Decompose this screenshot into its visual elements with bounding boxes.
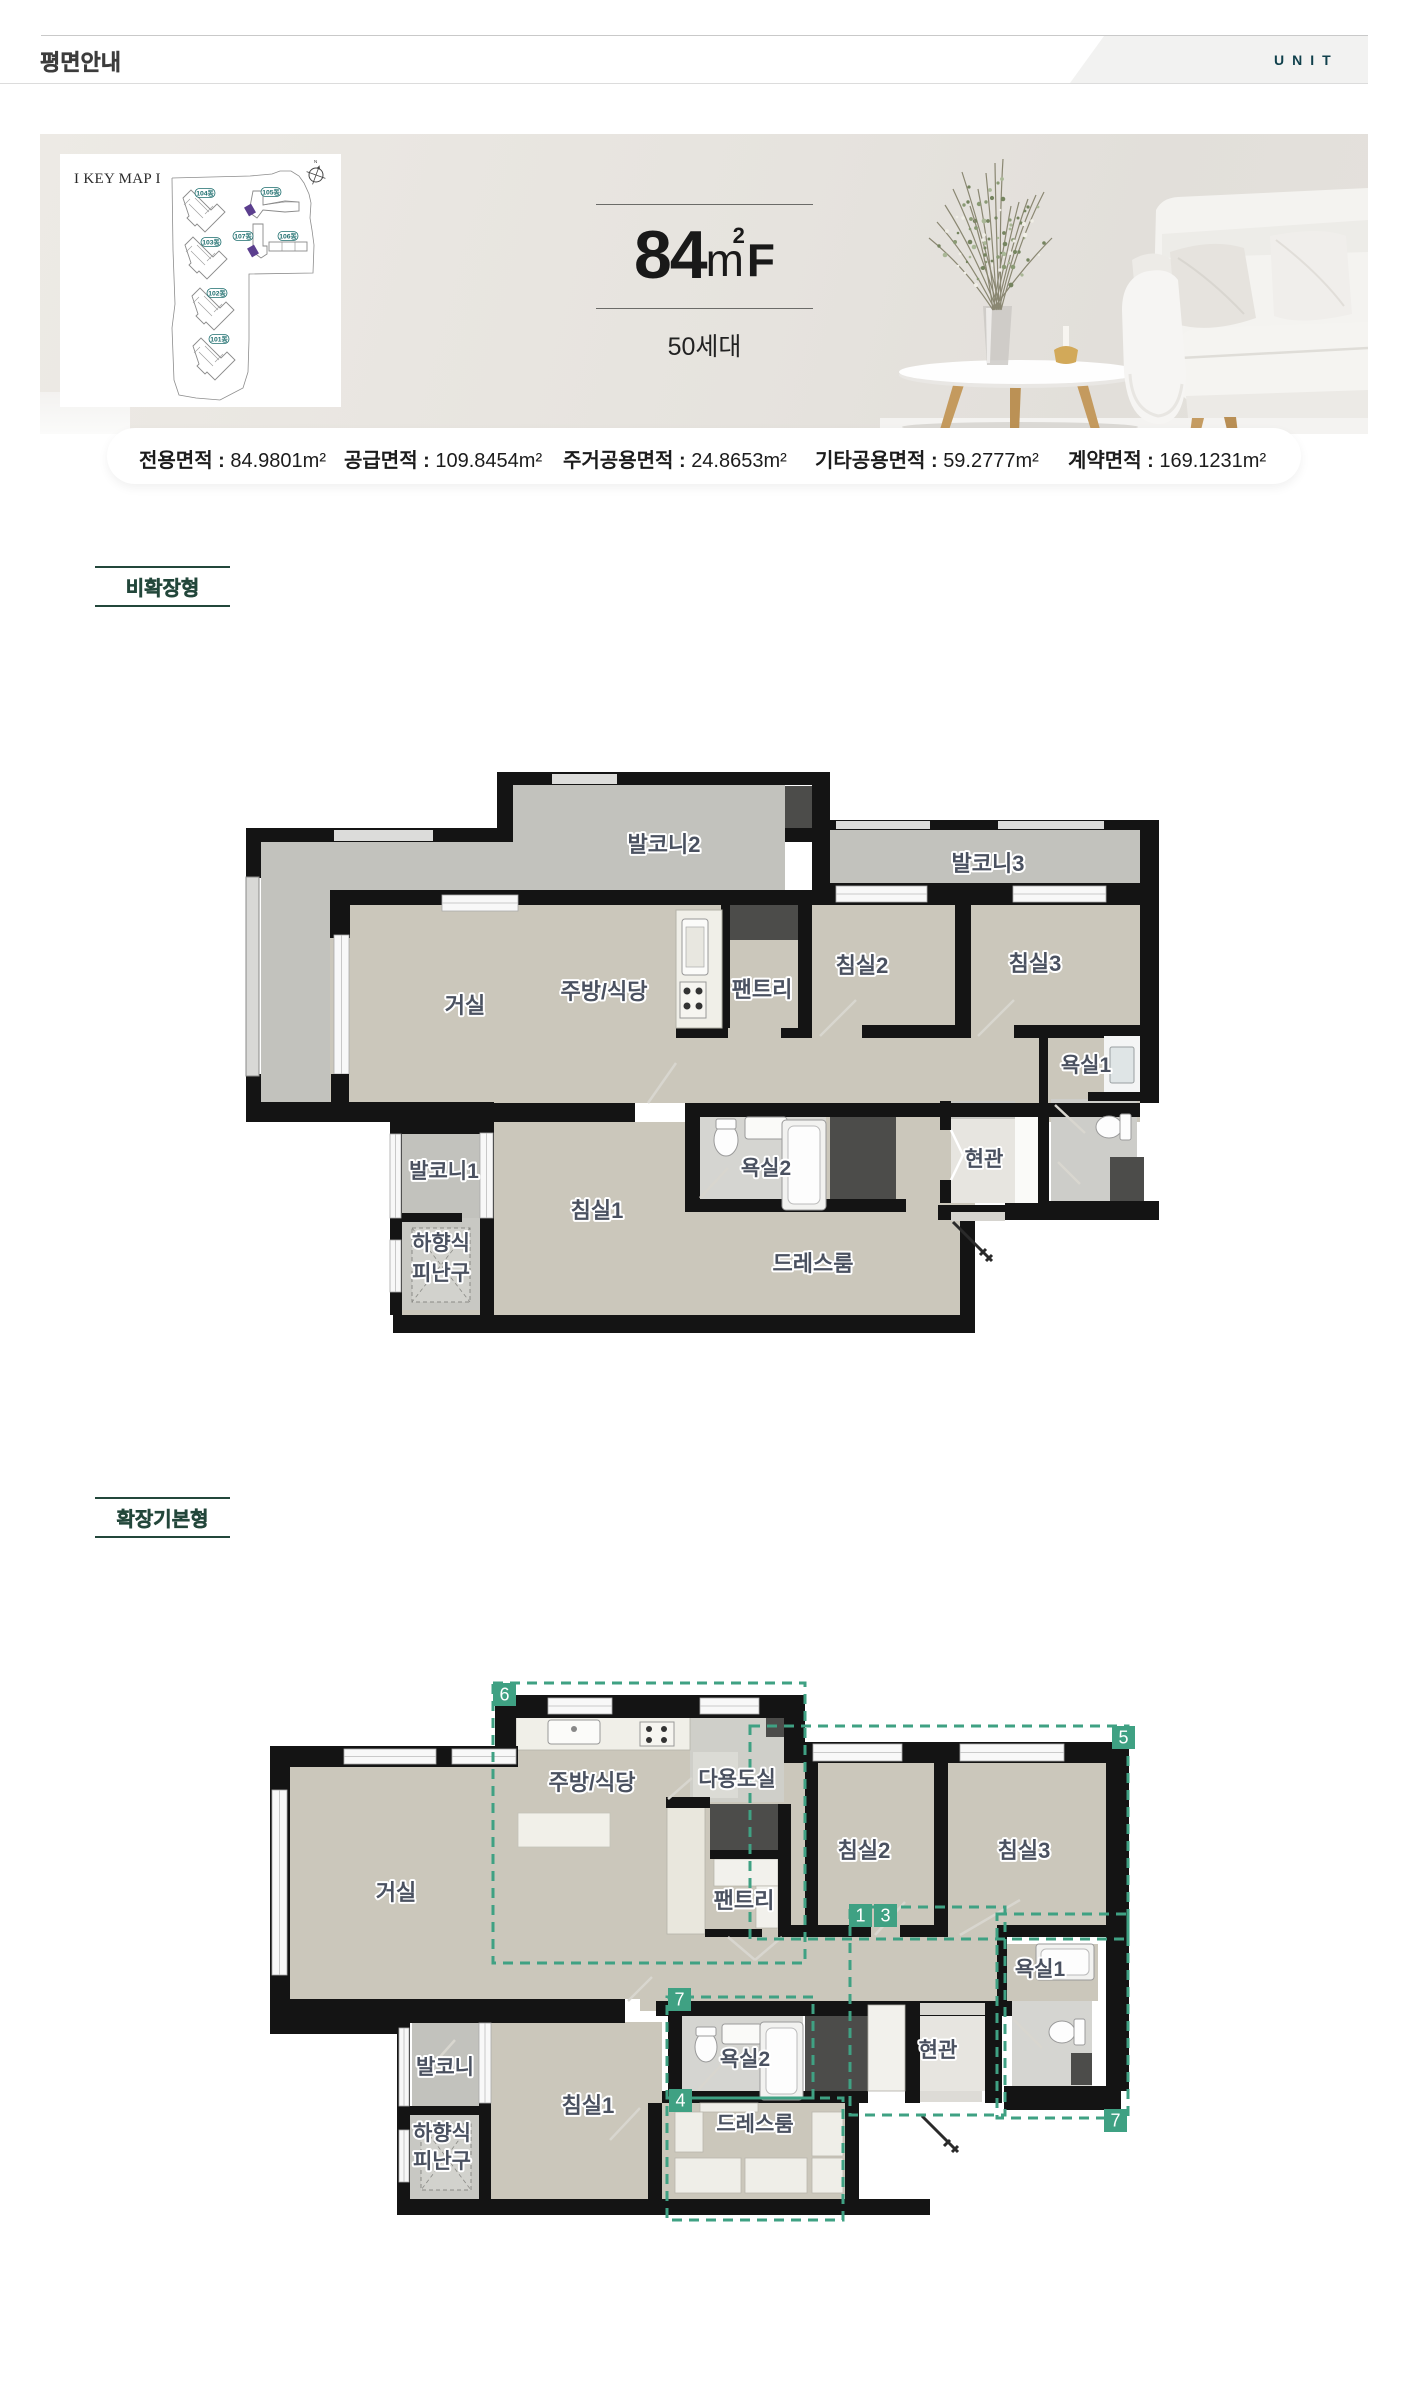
svg-text:욕실2: 욕실2: [741, 1157, 791, 1180]
svg-text:102동: 102동: [208, 289, 226, 297]
svg-text:7: 7: [1110, 2111, 1120, 2131]
svg-text:침실3: 침실3: [1009, 951, 1062, 976]
svg-text:주방/식당: 주방/식당: [560, 979, 647, 1004]
svg-text:107동: 107동: [234, 232, 252, 240]
svg-text:거실: 거실: [445, 993, 485, 1018]
svg-text:105동: 105동: [262, 188, 280, 196]
svg-text:하향식: 하향식: [413, 2121, 471, 2145]
svg-text:106동: 106동: [279, 232, 297, 240]
svg-text:3: 3: [880, 1906, 890, 1926]
svg-text:거실: 거실: [376, 1880, 416, 1905]
svg-text:발코니1: 발코니1: [409, 1160, 479, 1183]
svg-text:104동: 104동: [196, 189, 214, 197]
svg-text:피난구: 피난구: [412, 1262, 470, 1285]
svg-text:7: 7: [674, 1990, 684, 2010]
svg-text:피난구: 피난구: [413, 2150, 471, 2173]
svg-text:N: N: [314, 159, 317, 164]
svg-text:발코니3: 발코니3: [952, 851, 1025, 876]
svg-text:욕실1: 욕실1: [1015, 1958, 1066, 1981]
svg-text:1: 1: [855, 1906, 865, 1926]
svg-text:침실2: 침실2: [838, 1838, 891, 1863]
svg-text:현관: 현관: [965, 1148, 1004, 1171]
svg-text:4: 4: [675, 2091, 685, 2111]
svg-text:5: 5: [1118, 1728, 1128, 1748]
svg-text:101동: 101동: [210, 335, 228, 343]
svg-text:다용도실: 다용도실: [698, 1768, 775, 1791]
svg-text:하향식: 하향식: [412, 1231, 470, 1255]
svg-text:팬트리: 팬트리: [732, 977, 793, 1002]
svg-text:드레스룸: 드레스룸: [716, 2113, 793, 2136]
svg-text:침실3: 침실3: [998, 1838, 1051, 1863]
svg-text:욕실1: 욕실1: [1061, 1054, 1112, 1077]
svg-text:침실2: 침실2: [836, 953, 889, 978]
svg-text:팬트리: 팬트리: [714, 1888, 775, 1913]
svg-text:발코니2: 발코니2: [628, 832, 701, 857]
svg-text:현관: 현관: [919, 2039, 958, 2062]
svg-text:욕실2: 욕실2: [720, 2048, 770, 2071]
svg-text:침실1: 침실1: [562, 2093, 615, 2118]
svg-text:발코니: 발코니: [416, 2056, 474, 2079]
svg-text:주방/식당: 주방/식당: [548, 1770, 635, 1795]
svg-text:6: 6: [499, 1685, 509, 1705]
svg-text:103동: 103동: [202, 238, 220, 246]
svg-text:드레스룸: 드레스룸: [773, 1251, 854, 1276]
svg-text:I KEY MAP I: I KEY MAP I: [74, 171, 161, 187]
svg-text:침실1: 침실1: [571, 1198, 624, 1223]
